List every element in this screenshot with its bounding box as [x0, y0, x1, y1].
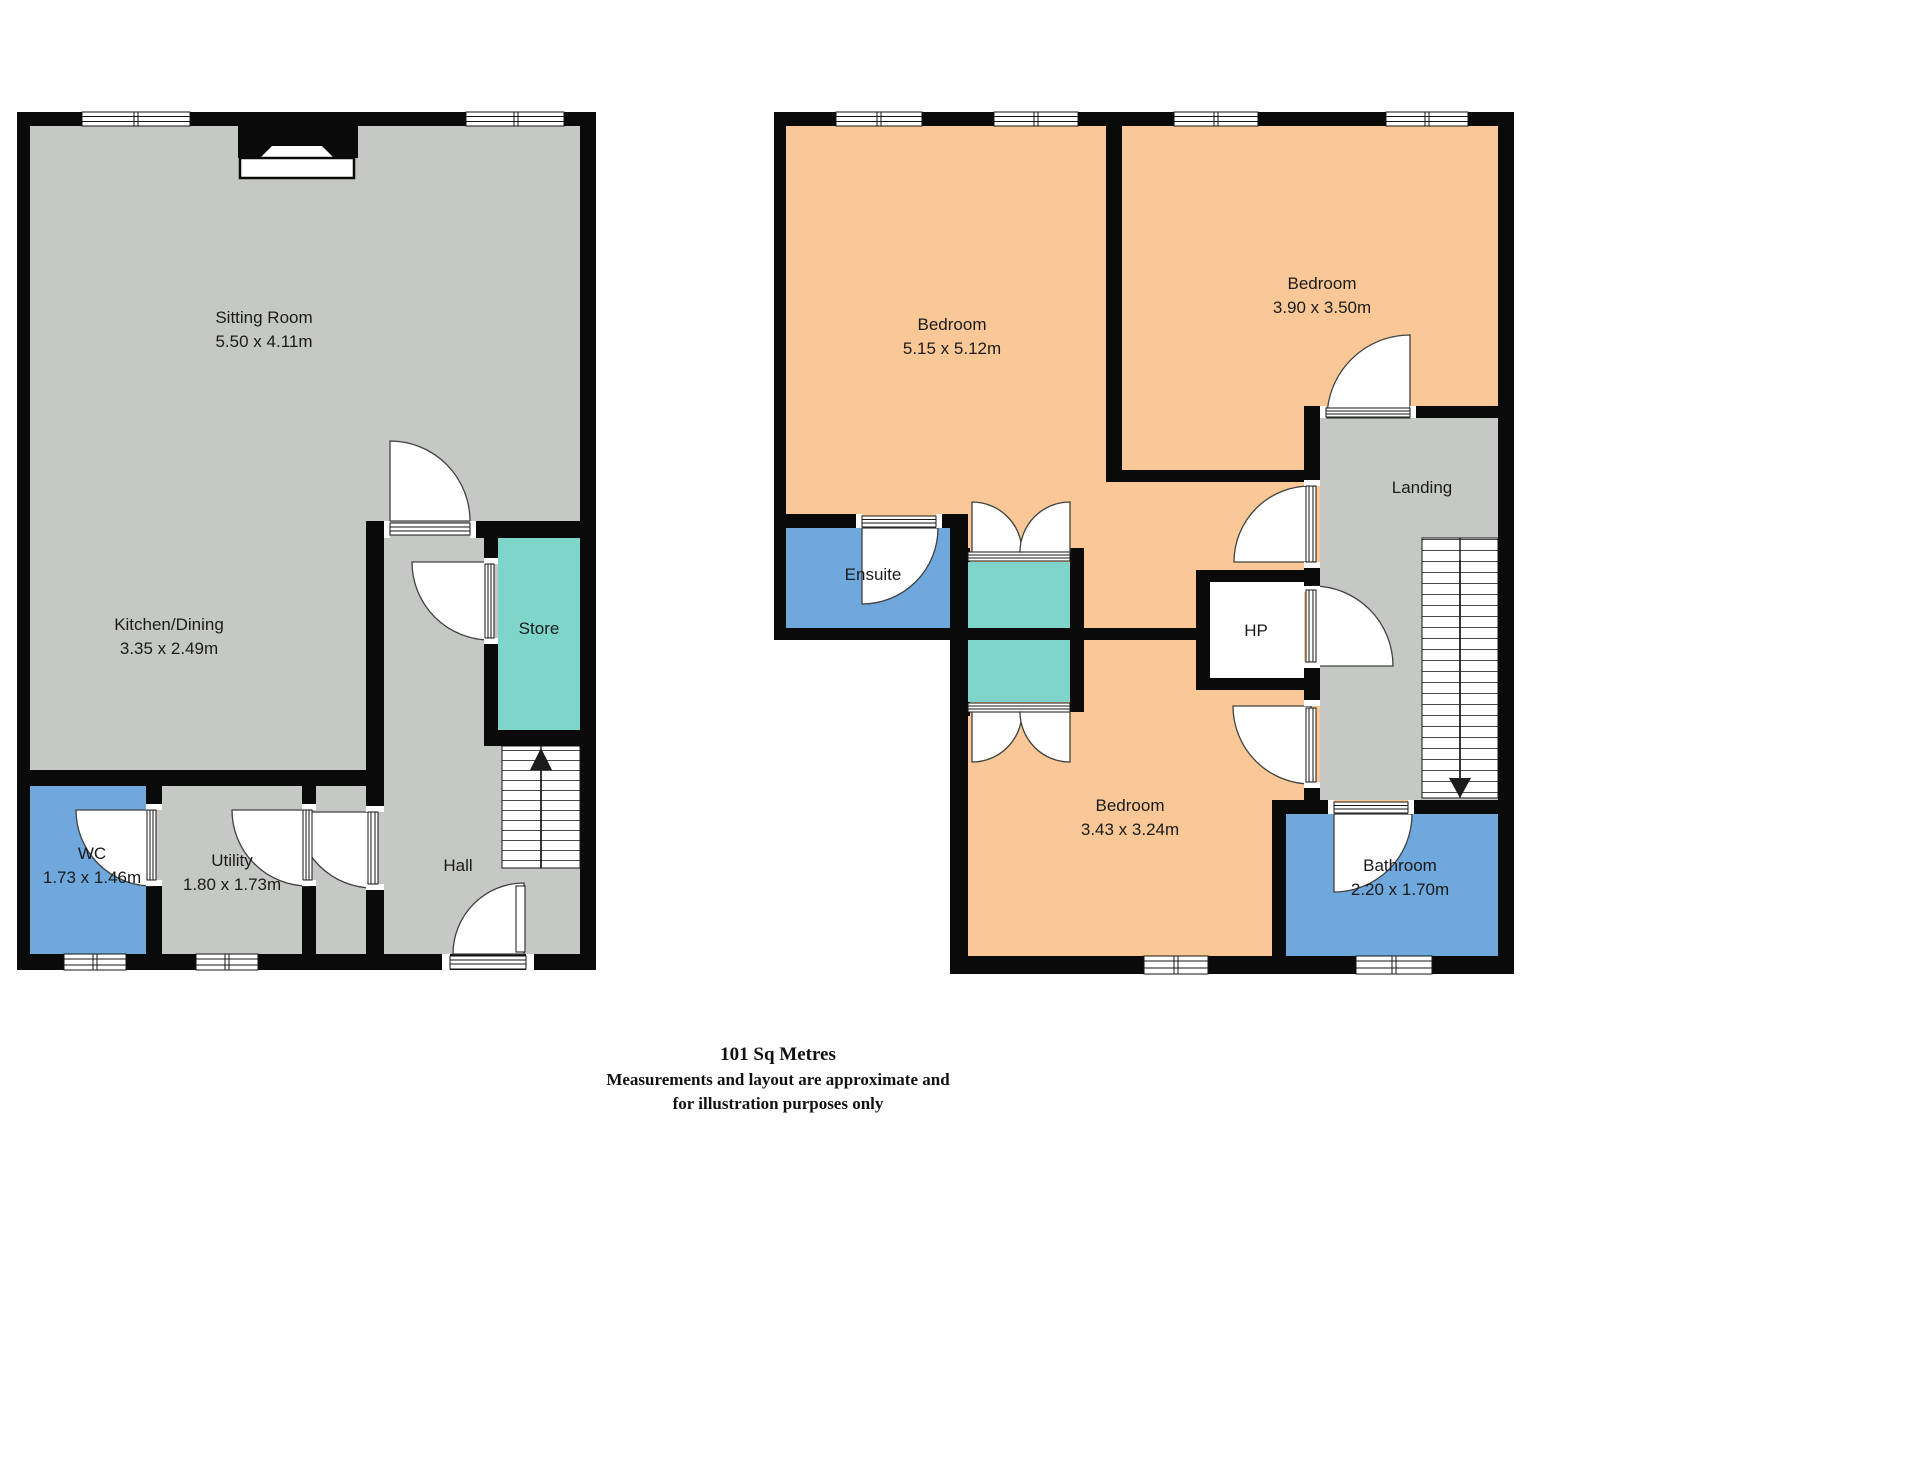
label-landing: Landing: [1392, 476, 1453, 500]
floorplan-page: Sitting Room 5.50 x 4.11m Kitchen/Dining…: [0, 0, 1920, 1460]
room-name: Hall: [443, 854, 472, 878]
label-sitting-room: Sitting Room 5.50 x 4.11m: [215, 306, 312, 354]
window: [196, 954, 258, 970]
room-dims: 3.43 x 3.24m: [1081, 818, 1179, 842]
room-name: Bedroom: [1273, 272, 1371, 296]
room-name: Landing: [1392, 476, 1453, 500]
room-dims: 5.15 x 5.12m: [903, 337, 1001, 361]
window: [466, 112, 564, 126]
stairs-down: [1422, 538, 1498, 798]
window: [1174, 112, 1258, 126]
room-name: Bathroom: [1351, 854, 1449, 878]
room-dims: 1.73 x 1.46m: [43, 866, 141, 890]
room-name: HP: [1244, 619, 1268, 643]
room-dims: 2.20 x 1.70m: [1351, 878, 1449, 902]
footer-disclaimer-line1: Measurements and layout are approximate …: [606, 1068, 949, 1092]
label-bathroom: Bathroom 2.20 x 1.70m: [1351, 854, 1449, 902]
room-name: Bedroom: [903, 313, 1001, 337]
window: [64, 954, 126, 970]
room-name: Store: [519, 617, 560, 641]
fireplace: [238, 126, 358, 178]
room-dims: 5.50 x 4.11m: [215, 330, 312, 354]
window: [1386, 112, 1468, 126]
floorplan-drawing: [0, 0, 1920, 1460]
cupboard-2-floor: [968, 640, 1070, 702]
label-bedroom-2: Bedroom 3.90 x 3.50m: [1273, 272, 1371, 320]
room-name: Sitting Room: [215, 306, 312, 330]
room-name: Ensuite: [845, 563, 902, 587]
room-dims: 3.90 x 3.50m: [1273, 296, 1371, 320]
label-bedroom-1: Bedroom 5.15 x 5.12m: [903, 313, 1001, 361]
footer-area-text: 101 Sq Metres: [606, 1042, 949, 1068]
window: [994, 112, 1078, 126]
label-ensuite: Ensuite: [845, 563, 902, 587]
room-name: Kitchen/Dining: [114, 613, 224, 637]
stairs-up: [502, 746, 580, 868]
window: [82, 112, 190, 126]
label-kitchen-dining: Kitchen/Dining 3.35 x 2.49m: [114, 613, 224, 661]
room-name: WC: [43, 842, 141, 866]
label-utility: Utility 1.80 x 1.73m: [183, 849, 281, 897]
label-store: Store: [519, 617, 560, 641]
room-name: Bedroom: [1081, 794, 1179, 818]
room-dims: 1.80 x 1.73m: [183, 873, 281, 897]
first-floor-plan: [774, 112, 1514, 974]
footer-note: 101 Sq Metres Measurements and layout ar…: [606, 1042, 949, 1116]
label-hall: Hall: [443, 854, 472, 878]
label-hp: HP: [1244, 619, 1268, 643]
window: [1356, 956, 1432, 974]
window: [836, 112, 922, 126]
room-dims: 3.35 x 2.49m: [114, 637, 224, 661]
room-name: Utility: [183, 849, 281, 873]
footer-disclaimer-line2: for illustration purposes only: [606, 1092, 949, 1116]
cupboard-1-floor: [968, 562, 1070, 628]
window: [1144, 956, 1208, 974]
label-wc: WC 1.73 x 1.46m: [43, 842, 141, 890]
label-bedroom-3: Bedroom 3.43 x 3.24m: [1081, 794, 1179, 842]
